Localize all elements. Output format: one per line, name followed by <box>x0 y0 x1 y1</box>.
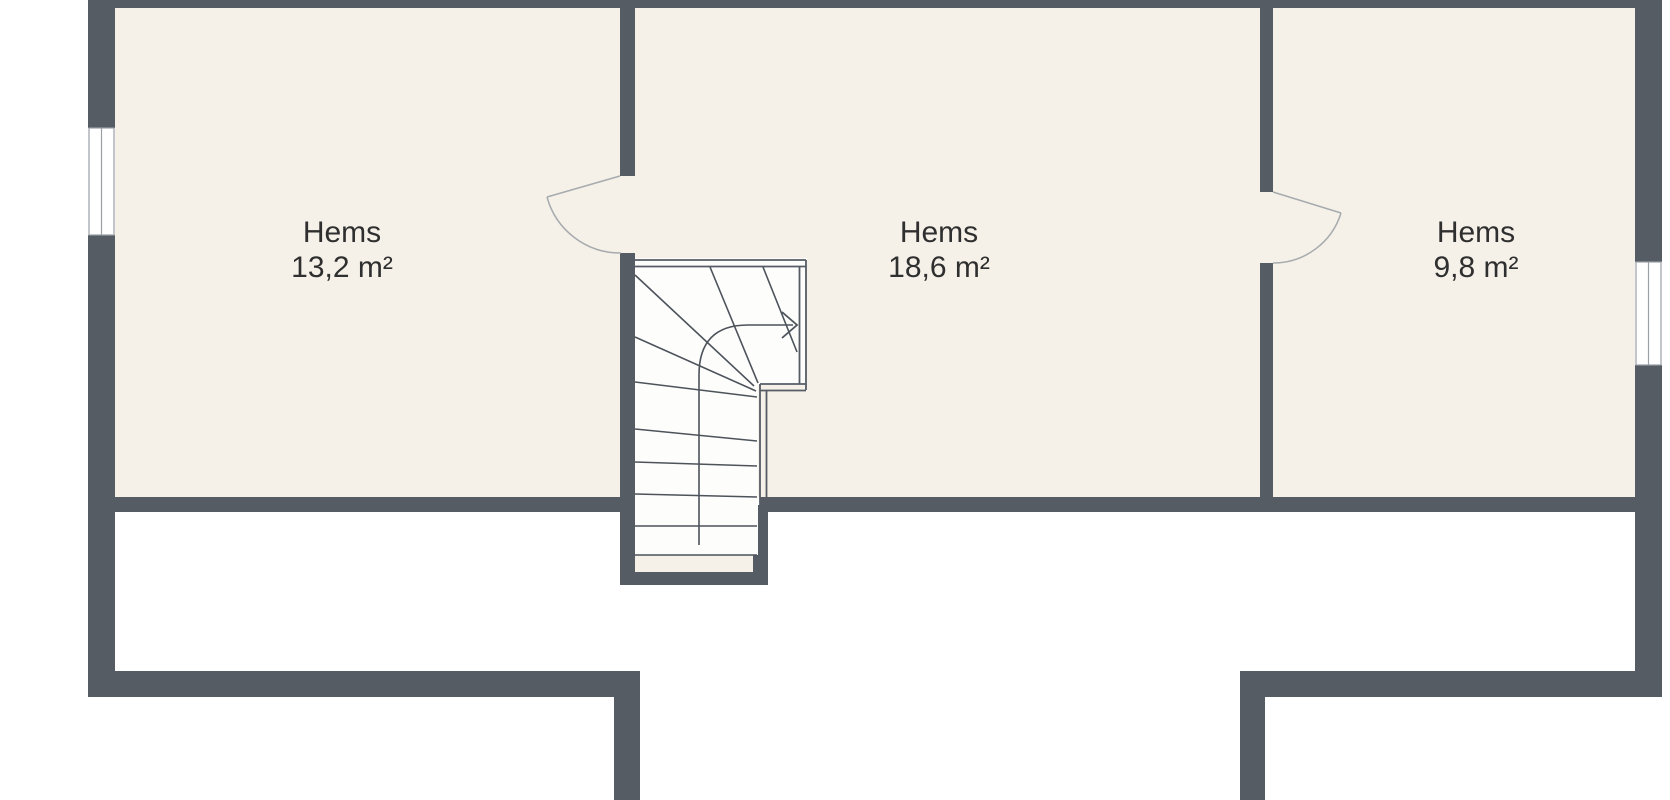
stair-area-lower <box>635 385 758 555</box>
wall-left-upper <box>88 0 115 128</box>
wall-rooms-bottom-left <box>115 497 620 512</box>
wall-stairwell-bottom <box>620 572 768 585</box>
wall-rooms-bottom-right <box>760 497 1635 512</box>
wall-middle-right-partition-upper <box>1260 8 1273 192</box>
wall-top <box>88 0 1662 8</box>
room-area: 13,2 m² <box>291 250 393 285</box>
window-right-icon <box>1636 262 1661 365</box>
room-area: 9,8 m² <box>1433 250 1518 285</box>
door-opening-right <box>1260 192 1273 263</box>
wall-middle-right-partition-lower <box>1260 263 1273 512</box>
door-opening-left <box>620 176 635 253</box>
stair-landing <box>635 555 753 572</box>
wall-lower-band-left <box>88 671 640 697</box>
stair-area-upper <box>635 258 807 385</box>
floor-plan: Hems 13,2 m² Hems 18,6 m² Hems 9,8 m² <box>0 0 1670 800</box>
wall-left-lower <box>88 235 115 697</box>
room-area: 18,6 m² <box>888 250 990 285</box>
wall-lower-step-right <box>1240 671 1265 800</box>
wall-right-upper <box>1635 0 1662 262</box>
room-name: Hems <box>888 215 990 250</box>
wall-left-middle-partition <box>620 8 635 176</box>
room-name: Hems <box>291 215 393 250</box>
room-label-middle: Hems 18,6 m² <box>888 215 990 285</box>
wall-lower-band-right <box>1240 671 1662 697</box>
wall-right-lower <box>1635 365 1662 697</box>
room-label-left: Hems 13,2 m² <box>291 215 393 285</box>
window-left-icon <box>89 128 114 235</box>
wall-stairwell-left <box>620 253 635 585</box>
room-label-right: Hems 9,8 m² <box>1433 215 1518 285</box>
wall-lower-step-left <box>614 671 640 800</box>
room-name: Hems <box>1433 215 1518 250</box>
